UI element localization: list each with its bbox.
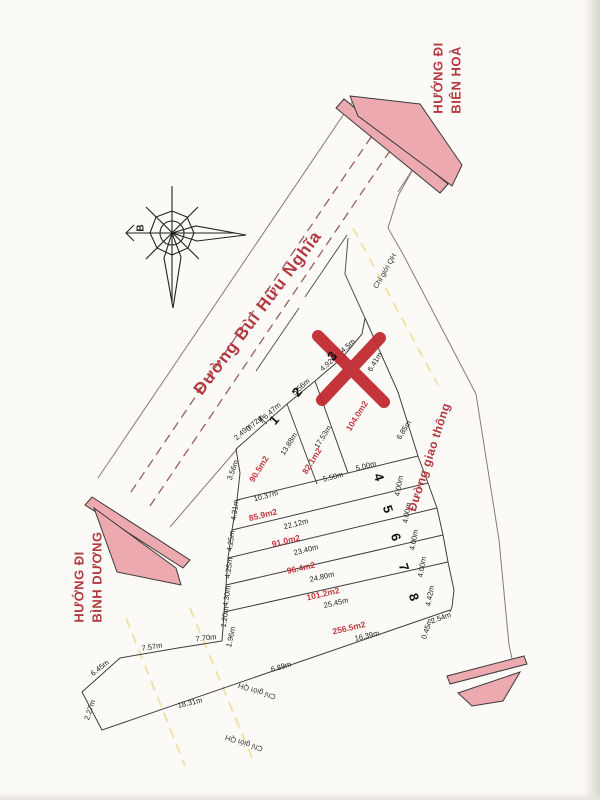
- compass-rose: [126, 186, 246, 308]
- planning-boundary-lines: [126, 228, 438, 766]
- direction-label-binh-duong: HƯỚNG ĐI BÌNH DƯƠNG: [70, 531, 105, 622]
- photo-edge-shadow: [584, 0, 600, 800]
- lot-block: [82, 318, 454, 730]
- direction-line: BÌNH DƯƠNG: [88, 531, 106, 622]
- direction-line: HƯỚNG ĐI: [429, 42, 447, 113]
- road-end-marker-south: [447, 656, 527, 706]
- direction-label-bien-hoa: HƯỚNG ĐI BIÊN HOÀ: [429, 42, 464, 113]
- compass-north-label: B: [136, 224, 147, 231]
- direction-line: BIÊN HOÀ: [447, 42, 465, 113]
- photo-edge-shadow: [0, 792, 600, 800]
- survey-plan-page: 2.49m0.72m6.47m5.56m4.92m4.5m3.56m13.88m…: [0, 0, 600, 800]
- dimension-label: 7.70m: [195, 633, 217, 643]
- direction-line: HƯỚNG ĐI: [70, 531, 88, 622]
